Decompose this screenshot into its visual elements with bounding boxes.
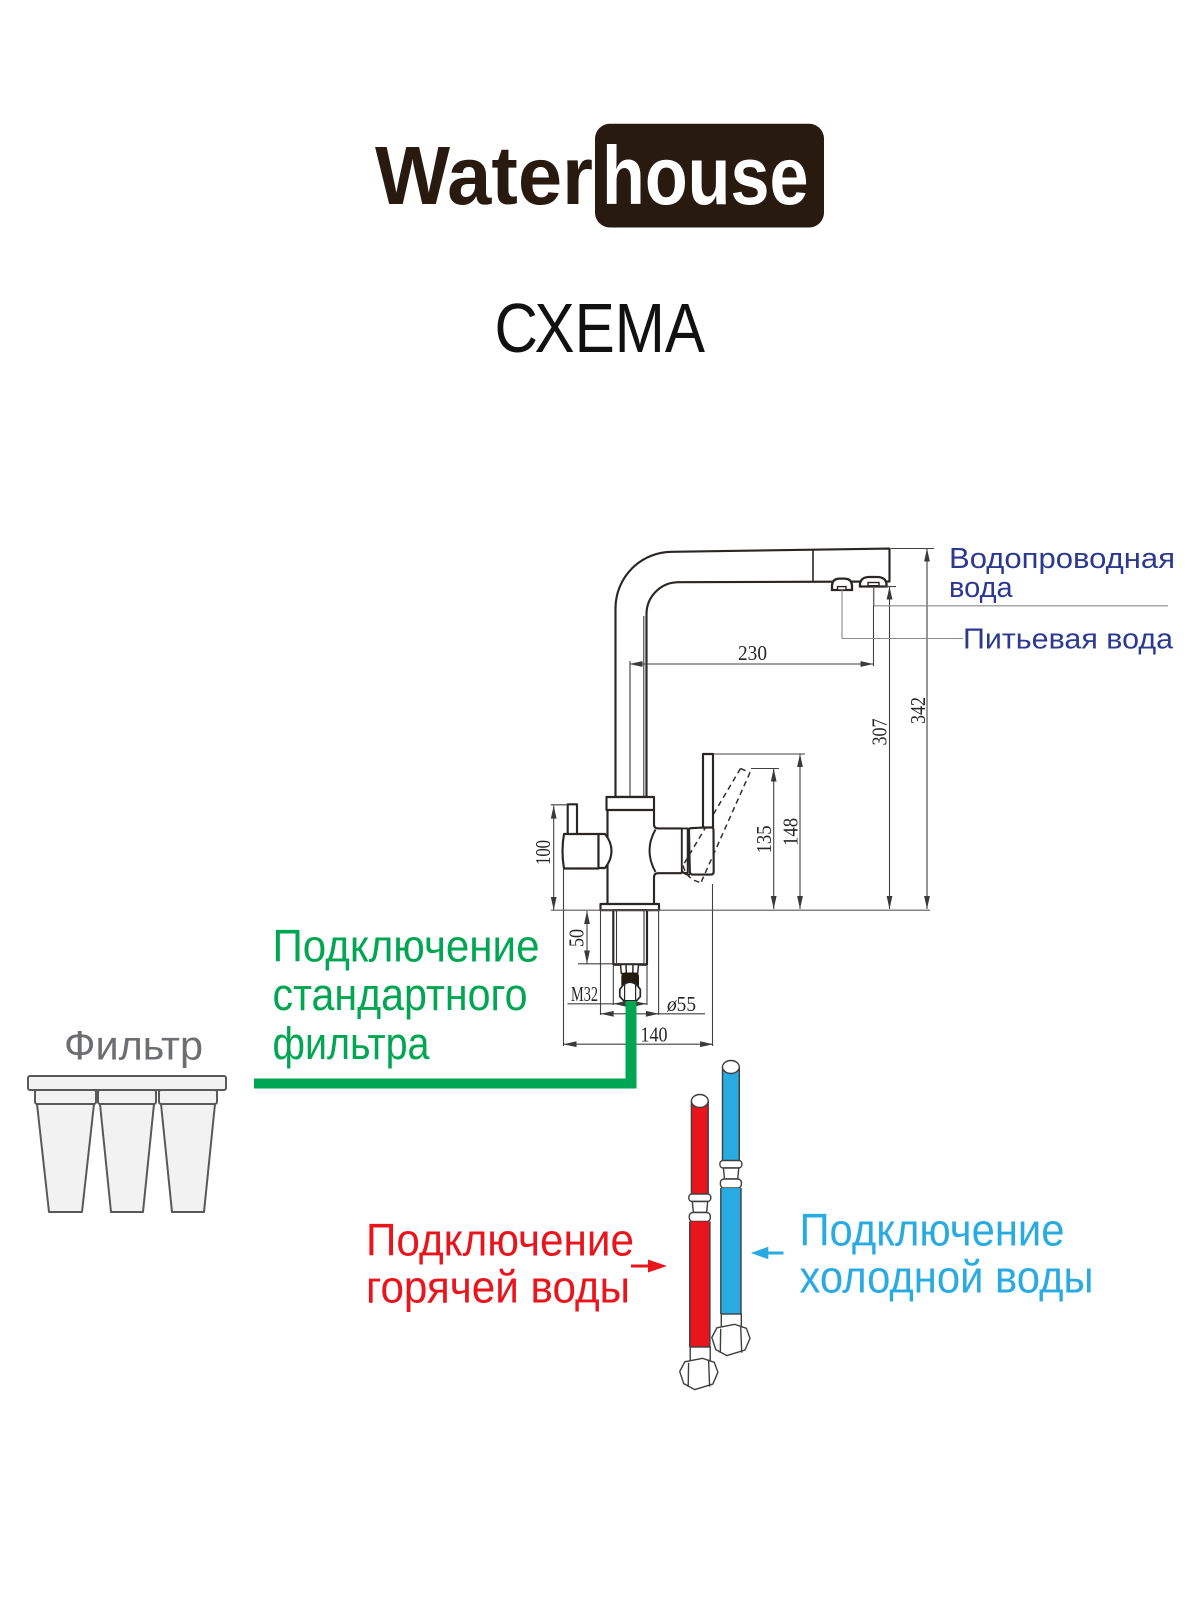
svg-text:Водопроводная: Водопроводная	[949, 543, 1175, 575]
svg-text:вода: вода	[949, 572, 1013, 604]
svg-text:307: 307	[868, 719, 892, 746]
svg-text:Water: Water	[375, 129, 593, 222]
svg-text:M32: M32	[571, 982, 598, 1006]
svg-text:Питьевая вода: Питьевая вода	[963, 624, 1174, 656]
svg-text:Подключение: Подключение	[273, 921, 540, 972]
svg-text:342: 342	[906, 697, 930, 724]
svg-text:фильтра: фильтра	[273, 1018, 431, 1069]
svg-text:Подключение: Подключение	[800, 1205, 1065, 1256]
svg-text:Подключение: Подключение	[366, 1214, 634, 1265]
svg-text:ø55: ø55	[666, 992, 696, 1016]
svg-text:230: 230	[738, 641, 767, 665]
svg-text:148: 148	[779, 818, 803, 846]
svg-text:стандартного: стандартного	[273, 969, 528, 1020]
svg-text:house: house	[602, 129, 809, 222]
svg-text:холодной воды: холодной воды	[800, 1252, 1094, 1303]
svg-text:Фильтр: Фильтр	[64, 1023, 203, 1069]
svg-text:СХЕМА: СХЕМА	[495, 289, 706, 367]
svg-text:100: 100	[531, 840, 555, 865]
svg-text:135: 135	[752, 825, 776, 853]
svg-text:140: 140	[641, 1023, 668, 1047]
svg-text:50: 50	[565, 929, 589, 947]
svg-text:горячей воды: горячей воды	[366, 1261, 630, 1312]
